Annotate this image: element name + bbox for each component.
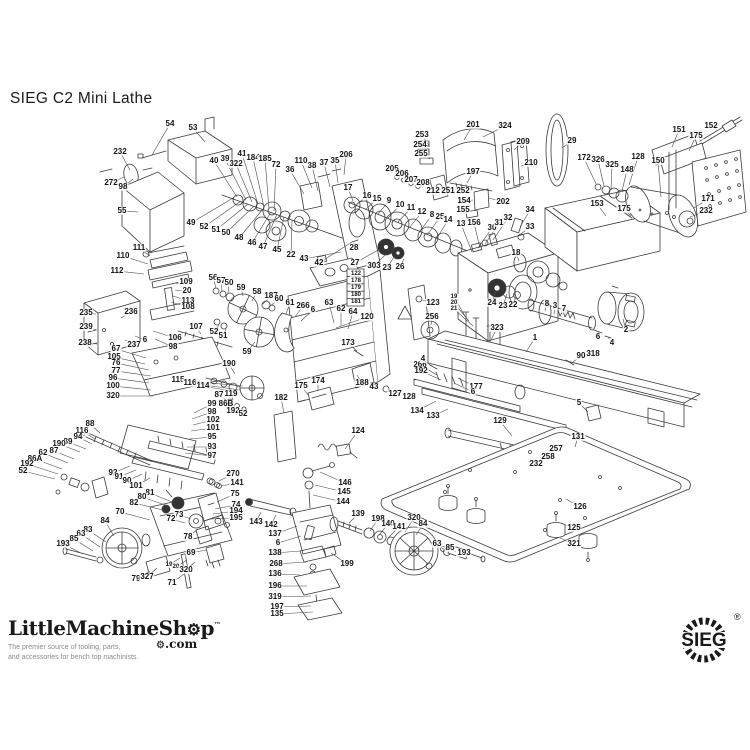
page-title: SIEG C2 Mini Lathe <box>10 90 152 108</box>
registered-mark: ® <box>734 612 741 622</box>
sieg-logo[interactable]: SIEG ® <box>658 606 750 668</box>
gear-icon: ⚙ <box>156 640 165 651</box>
lms-tagline-line2: and accessories for bench top machinists… <box>8 653 154 663</box>
trademark-symbol: ™ <box>214 620 221 629</box>
page: { "page": { "title": "SIEG C2 Mini Lathe… <box>0 0 750 750</box>
littlemachineshop-logo[interactable]: LittleMachineSh⚙p™ ⚙.com The premier sou… <box>8 616 248 663</box>
lms-tagline-line1: The premier source of tooling, parts, <box>8 643 154 653</box>
lms-dotcom-text: ⚙.com <box>156 637 197 651</box>
sieg-logo-text: SIEG <box>681 630 726 651</box>
